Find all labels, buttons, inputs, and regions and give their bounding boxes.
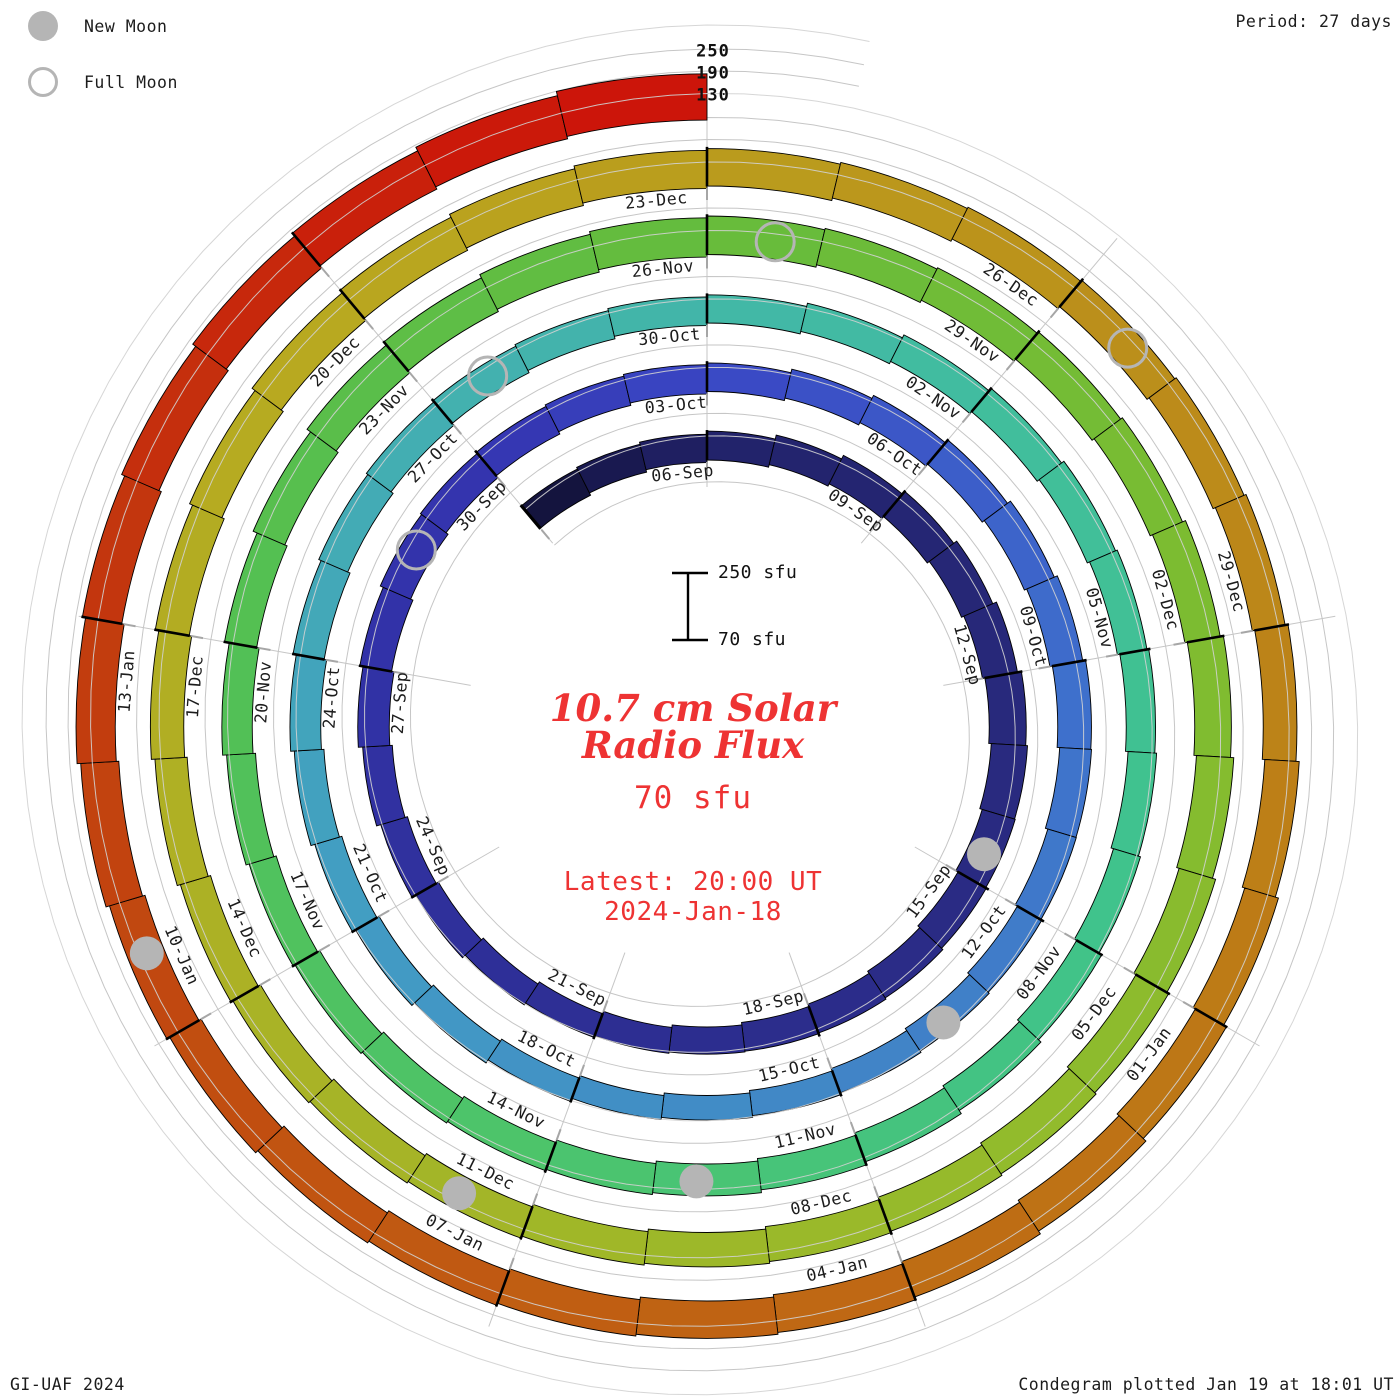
baseline-tick: [326, 660, 338, 662]
baseline-tick: [851, 1122, 855, 1133]
baseline-tick: [201, 1013, 211, 1019]
baseline-tick: [963, 413, 971, 422]
flux-day-segment: [785, 369, 872, 425]
baseline-tick: [1005, 899, 1015, 905]
flux-day-segment: [356, 916, 432, 1005]
flux-day-segment: [972, 388, 1062, 481]
baseline-tick: [124, 624, 136, 626]
baseline-tick: [1007, 361, 1015, 370]
flux-day-segment: [294, 749, 339, 845]
flux-day-segment: [1187, 636, 1231, 758]
flux-day-segment: [943, 1022, 1041, 1111]
latest-time: Latest: 20:00 UT: [393, 868, 993, 898]
flux-day-segment: [644, 1229, 769, 1267]
baseline-tick: [1065, 933, 1075, 939]
flux-day-segment: [1111, 752, 1157, 857]
flux-day-segment: [362, 1032, 462, 1123]
chart-title-line2: Radio Flux: [393, 727, 993, 764]
credit-label: GI-UAF 2024: [10, 1375, 125, 1394]
flux-day-segment: [984, 501, 1054, 590]
full-moon-label: Full Moon: [84, 73, 178, 92]
chart-title-line1: 10.7 cm Solar: [393, 690, 993, 727]
flux-day-segment: [1134, 868, 1216, 992]
flux-day-segment: [1255, 625, 1297, 762]
radial-axis-tick-label: 250: [696, 42, 730, 62]
baseline-tick: [1241, 631, 1253, 633]
flux-day-segment: [1094, 418, 1182, 536]
current-flux-value: 70 sfu: [393, 780, 993, 816]
flux-day-segment: [225, 533, 288, 648]
flux-day-segment: [556, 74, 707, 137]
flux-day-segment: [855, 1088, 962, 1162]
baseline-tick: [827, 1058, 831, 1069]
baseline-tick: [379, 911, 389, 917]
spiral-date-label: 17-Dec: [183, 655, 207, 719]
flux-day-segment: [227, 753, 274, 865]
baseline-tick: [409, 372, 417, 381]
moon-legend: New Moon Full Moon: [28, 10, 178, 122]
new-moon-marker: [442, 1176, 476, 1210]
baseline-tick: [365, 320, 373, 329]
baseline-tick: [533, 1194, 537, 1205]
new-moon-marker: [130, 936, 164, 970]
baseline-tick: [556, 1129, 560, 1140]
flux-day-segment: [358, 666, 394, 747]
baseline-tick: [321, 267, 329, 276]
flux-day-segment: [515, 311, 615, 371]
flux-day-segment: [1015, 829, 1076, 920]
baseline-tick: [191, 636, 203, 638]
baseline-tick: [874, 1186, 878, 1197]
baseline-tick: [542, 530, 550, 539]
flux-day-segment: [295, 951, 382, 1054]
baseline-tick: [1124, 968, 1134, 974]
center-annotation: 10.7 cm Solar Radio Flux 70 sfu Latest: …: [393, 690, 993, 928]
flux-day-segment: [707, 149, 840, 201]
baseline-tick: [580, 1065, 584, 1076]
flux-day-segment: [450, 169, 584, 248]
scalebar-max-label: 250 sfu: [718, 562, 797, 583]
flux-day-segment: [319, 474, 393, 572]
plotted-timestamp: Condegram plotted Jan 19 at 18:01 UT: [1018, 1375, 1394, 1394]
flux-day-segment: [577, 444, 647, 493]
latest-reading: Latest: 20:00 UT 2024-Jan-18: [393, 868, 993, 928]
flux-day-segment: [82, 476, 161, 624]
flux-day-segment: [1052, 660, 1091, 749]
flux-day-segment: [661, 1093, 752, 1120]
baseline-tick: [1183, 1002, 1193, 1008]
scalebar-min-label: 70 sfu: [718, 629, 786, 650]
condegram-page: 06-Sep03-Oct30-Oct26-Nov23-Dec09-Sep06-O…: [0, 0, 1400, 1400]
flux-day-segment: [1177, 756, 1234, 879]
flux-day-segment: [546, 1140, 656, 1194]
flux-day-segment: [497, 1269, 640, 1336]
baseline-tick: [1051, 308, 1059, 317]
new-moon-icon: [28, 11, 58, 41]
baseline-tick: [1106, 655, 1118, 657]
legend-new-moon: New Moon: [28, 10, 178, 42]
new-moon-marker: [926, 1005, 960, 1039]
flux-day-segment: [1242, 759, 1299, 897]
new-moon-marker: [679, 1164, 713, 1198]
legend-full-moon: Full Moon: [28, 66, 178, 98]
baseline-tick: [510, 1258, 514, 1269]
flux-day-segment: [928, 440, 1008, 522]
flux-day-segment: [1039, 461, 1115, 563]
new-moon-label: New Moon: [84, 17, 167, 36]
baseline-tick: [898, 1251, 902, 1262]
flux-day-segment: [415, 985, 501, 1063]
flux-day-segment: [1045, 748, 1091, 838]
radial-axis-tick-label: 130: [696, 86, 730, 106]
flux-day-segment: [360, 587, 413, 671]
flux-day-segment: [636, 1297, 778, 1338]
flux-day-segment: [808, 973, 886, 1033]
baseline-tick: [259, 648, 271, 650]
flux-day-segment: [595, 1011, 672, 1053]
flux-day-segment: [545, 376, 631, 431]
baseline-tick: [260, 979, 270, 985]
latest-date: 2024-Jan-18: [393, 898, 993, 928]
flux-day-segment: [233, 985, 332, 1103]
full-moon-icon: [28, 67, 58, 97]
radial-axis-tick-label: 190: [696, 64, 730, 84]
flux-day-segment: [293, 561, 350, 660]
flux-day-segment: [81, 761, 143, 907]
flux-day-segment: [831, 1031, 921, 1093]
flux-day-segment: [155, 505, 224, 636]
flux-day-segment: [465, 938, 538, 1005]
baseline-tick: [453, 425, 461, 434]
baseline-tick: [1174, 643, 1186, 645]
spiral-date-label: 20-Nov: [251, 660, 275, 724]
baseline-tick: [319, 945, 329, 951]
spiral-date-label: 13-Jan: [115, 649, 139, 713]
spiral-date-label: 24-Oct: [319, 665, 343, 729]
period-label: Period: 27 days: [1235, 12, 1392, 31]
flux-day-segment: [832, 162, 967, 241]
